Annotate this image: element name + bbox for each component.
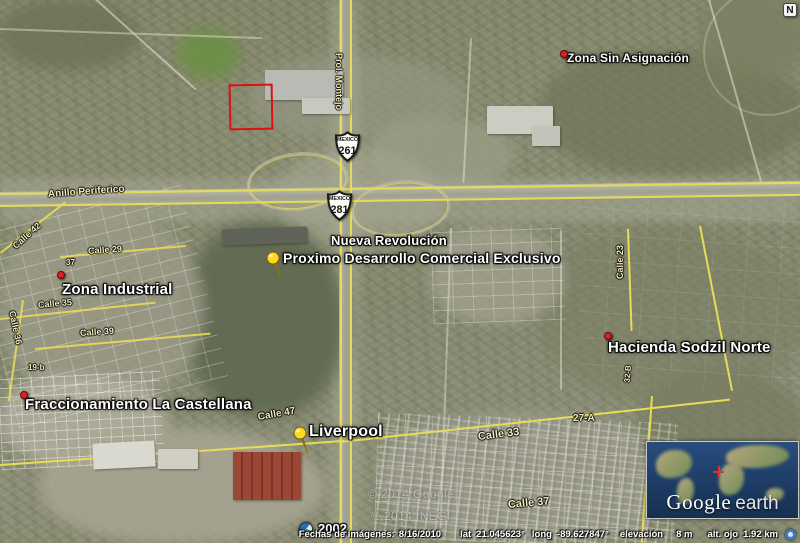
placemark-dot-1[interactable] (57, 271, 65, 279)
road-label-37: 37 (66, 258, 75, 267)
compass-north-indicator[interactable]: N (783, 3, 797, 17)
streaming-indicator-icon (785, 529, 796, 540)
eye-alt-label: alt. ojo (708, 529, 739, 540)
place-label-proximo-desarrollo-comercial-exclusivo[interactable]: Proximo Desarrollo Comercial Exclusivo (283, 251, 561, 266)
road-label-calle-29: Calle 29 (88, 244, 123, 256)
pushpin-marker-5[interactable] (291, 425, 311, 455)
placemark-dot-2[interactable] (604, 332, 612, 340)
lat-label: lat (460, 529, 471, 540)
imagery-date-value: 8/16/2010 (399, 529, 441, 540)
place-label-zona-industrial[interactable]: Zona Industrial (62, 282, 173, 299)
long-label: long (532, 529, 552, 540)
location-crosshair-v (718, 466, 720, 477)
continent-americas (656, 450, 692, 479)
road-label-calle-36: Calle 36 (7, 310, 24, 345)
google-earth-satellite-view[interactable]: MEXICO 261 MEXICO 281 Zona Sin Asignació… (0, 0, 800, 543)
road-label-27-a: 27-A (573, 413, 595, 424)
pushpin-marker-4[interactable] (264, 250, 284, 280)
road-label-calle-47: Calle 47 (257, 406, 296, 423)
road-label-prol-montejo: Prol. Montejo (334, 53, 344, 110)
continent-eurasia (726, 445, 789, 468)
eye-alt-value: 1.92 km (743, 529, 778, 540)
place-label-nueva-revoluci-n[interactable]: Nueva Revolución (331, 234, 447, 248)
road-label-calle-23: Calle 23 (615, 245, 625, 279)
status-bar: Fechas de imágenes: 8/16/2010 lat 21.045… (299, 529, 796, 540)
road-label-32-b: 32-B (623, 365, 633, 383)
road-label-calle-33: Calle 33 (477, 426, 520, 443)
lat-value: 21.045623° (476, 529, 525, 540)
copyright-google: © 2014 Google (368, 487, 454, 501)
google-earth-logo-overview-map[interactable]: Googleearth (646, 441, 799, 519)
road-label-calle-37: Calle 37 (507, 495, 549, 511)
place-label-zona-sin-asignaci-n[interactable]: Zona Sin Asignación (567, 52, 689, 65)
elevation-label: elevación (620, 529, 663, 540)
place-label-fraccionamiento-la-castellana[interactable]: Fraccionamiento La Castellana (25, 397, 252, 414)
placemark-dot-0[interactable] (560, 50, 568, 58)
place-label-hacienda-sodzil-norte[interactable]: Hacienda Sodzil Norte (608, 340, 771, 357)
long-value: -89.627847° (557, 529, 609, 540)
road-label-calle-35: Calle 35 (38, 297, 73, 310)
road-label-19-b: 19-b (28, 363, 44, 372)
road-label-anillo-periferico: Anillo Periferico (48, 184, 125, 200)
copyright-inegi: © 2014 INEGI (371, 509, 451, 523)
placemark-dot-3[interactable] (20, 391, 28, 399)
imagery-dates-label: Fechas de imágenes: (299, 529, 395, 540)
place-label-liverpool[interactable]: Liverpool (309, 423, 383, 441)
road-label-calle-39: Calle 39 (80, 326, 115, 338)
road-label-calle-42: Calle 42 (11, 221, 43, 251)
google-earth-wordmark: Googleearth (647, 490, 798, 515)
elevation-value: 8 m (676, 529, 692, 540)
